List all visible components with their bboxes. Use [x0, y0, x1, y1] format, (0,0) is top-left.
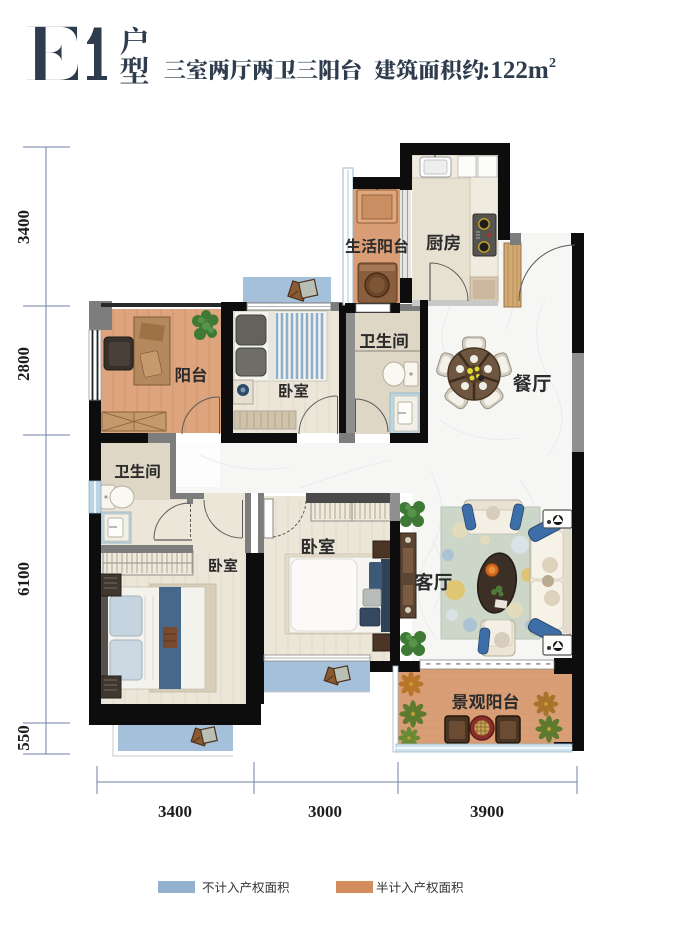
svg-text:3400: 3400	[14, 210, 33, 244]
svg-text:2800: 2800	[14, 347, 33, 381]
svg-text:2: 2	[549, 56, 556, 71]
svg-text::122m: :122m	[482, 57, 549, 84]
svg-text:3900: 3900	[470, 802, 504, 821]
svg-text:3000: 3000	[308, 802, 342, 821]
svg-text:550: 550	[14, 725, 33, 751]
svg-text:3400: 3400	[158, 802, 192, 821]
svg-text:6100: 6100	[14, 562, 33, 596]
